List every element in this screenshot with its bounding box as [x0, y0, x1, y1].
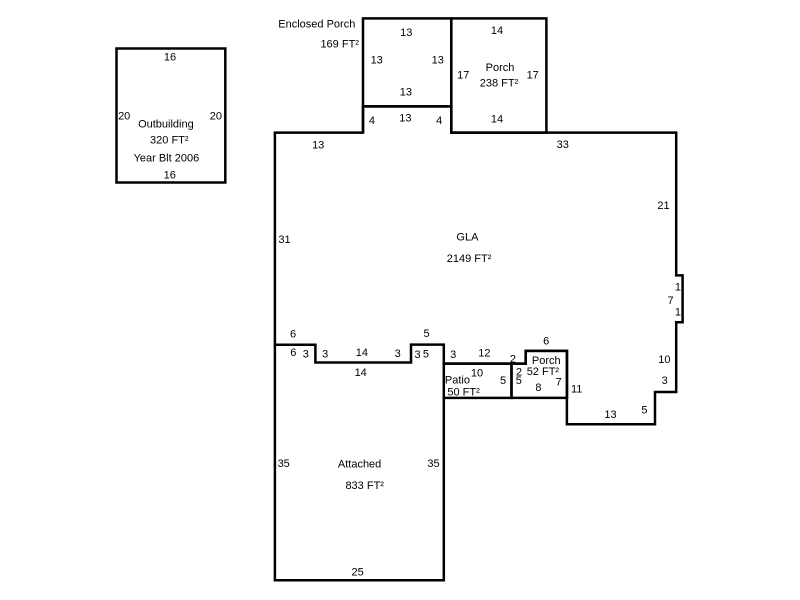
- svg-text:17: 17: [527, 70, 539, 82]
- svg-text:3: 3: [322, 348, 328, 360]
- svg-text:14: 14: [491, 114, 503, 126]
- svg-text:1: 1: [675, 306, 681, 318]
- svg-text:10: 10: [471, 368, 483, 380]
- svg-text:33: 33: [557, 139, 569, 151]
- svg-text:5: 5: [500, 375, 506, 387]
- svg-text:13: 13: [399, 112, 411, 124]
- svg-text:6: 6: [290, 347, 296, 359]
- svg-text:14: 14: [356, 347, 368, 359]
- svg-text:3: 3: [395, 348, 401, 360]
- svg-text:14: 14: [355, 367, 367, 379]
- svg-text:52 FT²: 52 FT²: [527, 366, 560, 378]
- svg-text:Attached: Attached: [338, 459, 381, 471]
- svg-text:4: 4: [436, 115, 442, 127]
- svg-text:14: 14: [491, 25, 503, 37]
- svg-text:13: 13: [432, 55, 444, 67]
- svg-text:12: 12: [478, 348, 490, 360]
- svg-text:238 FT²: 238 FT²: [480, 77, 519, 89]
- svg-text:16: 16: [164, 52, 176, 64]
- svg-text:5: 5: [641, 404, 647, 416]
- svg-text:13: 13: [312, 139, 324, 151]
- svg-text:3: 3: [414, 349, 420, 361]
- svg-text:Porch: Porch: [486, 62, 515, 74]
- svg-text:50 FT²: 50 FT²: [447, 386, 480, 398]
- svg-text:13: 13: [400, 27, 412, 39]
- svg-text:10: 10: [658, 354, 670, 366]
- svg-text:20: 20: [118, 110, 130, 122]
- svg-text:5: 5: [423, 349, 429, 361]
- svg-text:Patio: Patio: [445, 375, 470, 387]
- svg-text:Outbuilding: Outbuilding: [138, 118, 194, 130]
- svg-text:Porch: Porch: [532, 355, 561, 367]
- svg-text:13: 13: [400, 87, 412, 99]
- svg-text:13: 13: [371, 55, 383, 67]
- svg-text:25: 25: [351, 566, 363, 578]
- svg-text:4: 4: [369, 115, 375, 127]
- svg-text:3: 3: [450, 349, 456, 361]
- svg-text:16: 16: [164, 170, 176, 182]
- svg-text:1: 1: [675, 282, 681, 294]
- svg-text:11: 11: [571, 384, 582, 396]
- svg-text:7: 7: [668, 295, 674, 307]
- svg-text:8: 8: [535, 382, 541, 394]
- svg-text:320 FT²: 320 FT²: [150, 135, 189, 147]
- svg-text:Enclosed Porch: Enclosed Porch: [278, 19, 355, 31]
- svg-text:20: 20: [210, 110, 222, 122]
- svg-text:31: 31: [278, 234, 290, 246]
- svg-text:3: 3: [303, 348, 309, 360]
- svg-text:17: 17: [457, 70, 469, 82]
- svg-text:Year Blt 2006: Year Blt 2006: [134, 153, 200, 165]
- svg-text:2149 FT²: 2149 FT²: [447, 253, 492, 265]
- svg-text:833 FT²: 833 FT²: [345, 480, 384, 492]
- svg-text:13: 13: [604, 409, 616, 421]
- svg-text:6: 6: [290, 329, 296, 341]
- svg-text:6: 6: [543, 335, 549, 347]
- svg-text:35: 35: [278, 458, 290, 470]
- svg-text:5: 5: [423, 328, 429, 340]
- svg-text:35: 35: [427, 458, 439, 470]
- svg-text:21: 21: [657, 200, 669, 212]
- svg-text:3: 3: [662, 375, 668, 387]
- svg-text:169 FT²: 169 FT²: [320, 39, 359, 51]
- svg-text:5: 5: [516, 375, 522, 387]
- svg-text:GLA: GLA: [456, 232, 479, 244]
- svg-text:7: 7: [556, 376, 562, 388]
